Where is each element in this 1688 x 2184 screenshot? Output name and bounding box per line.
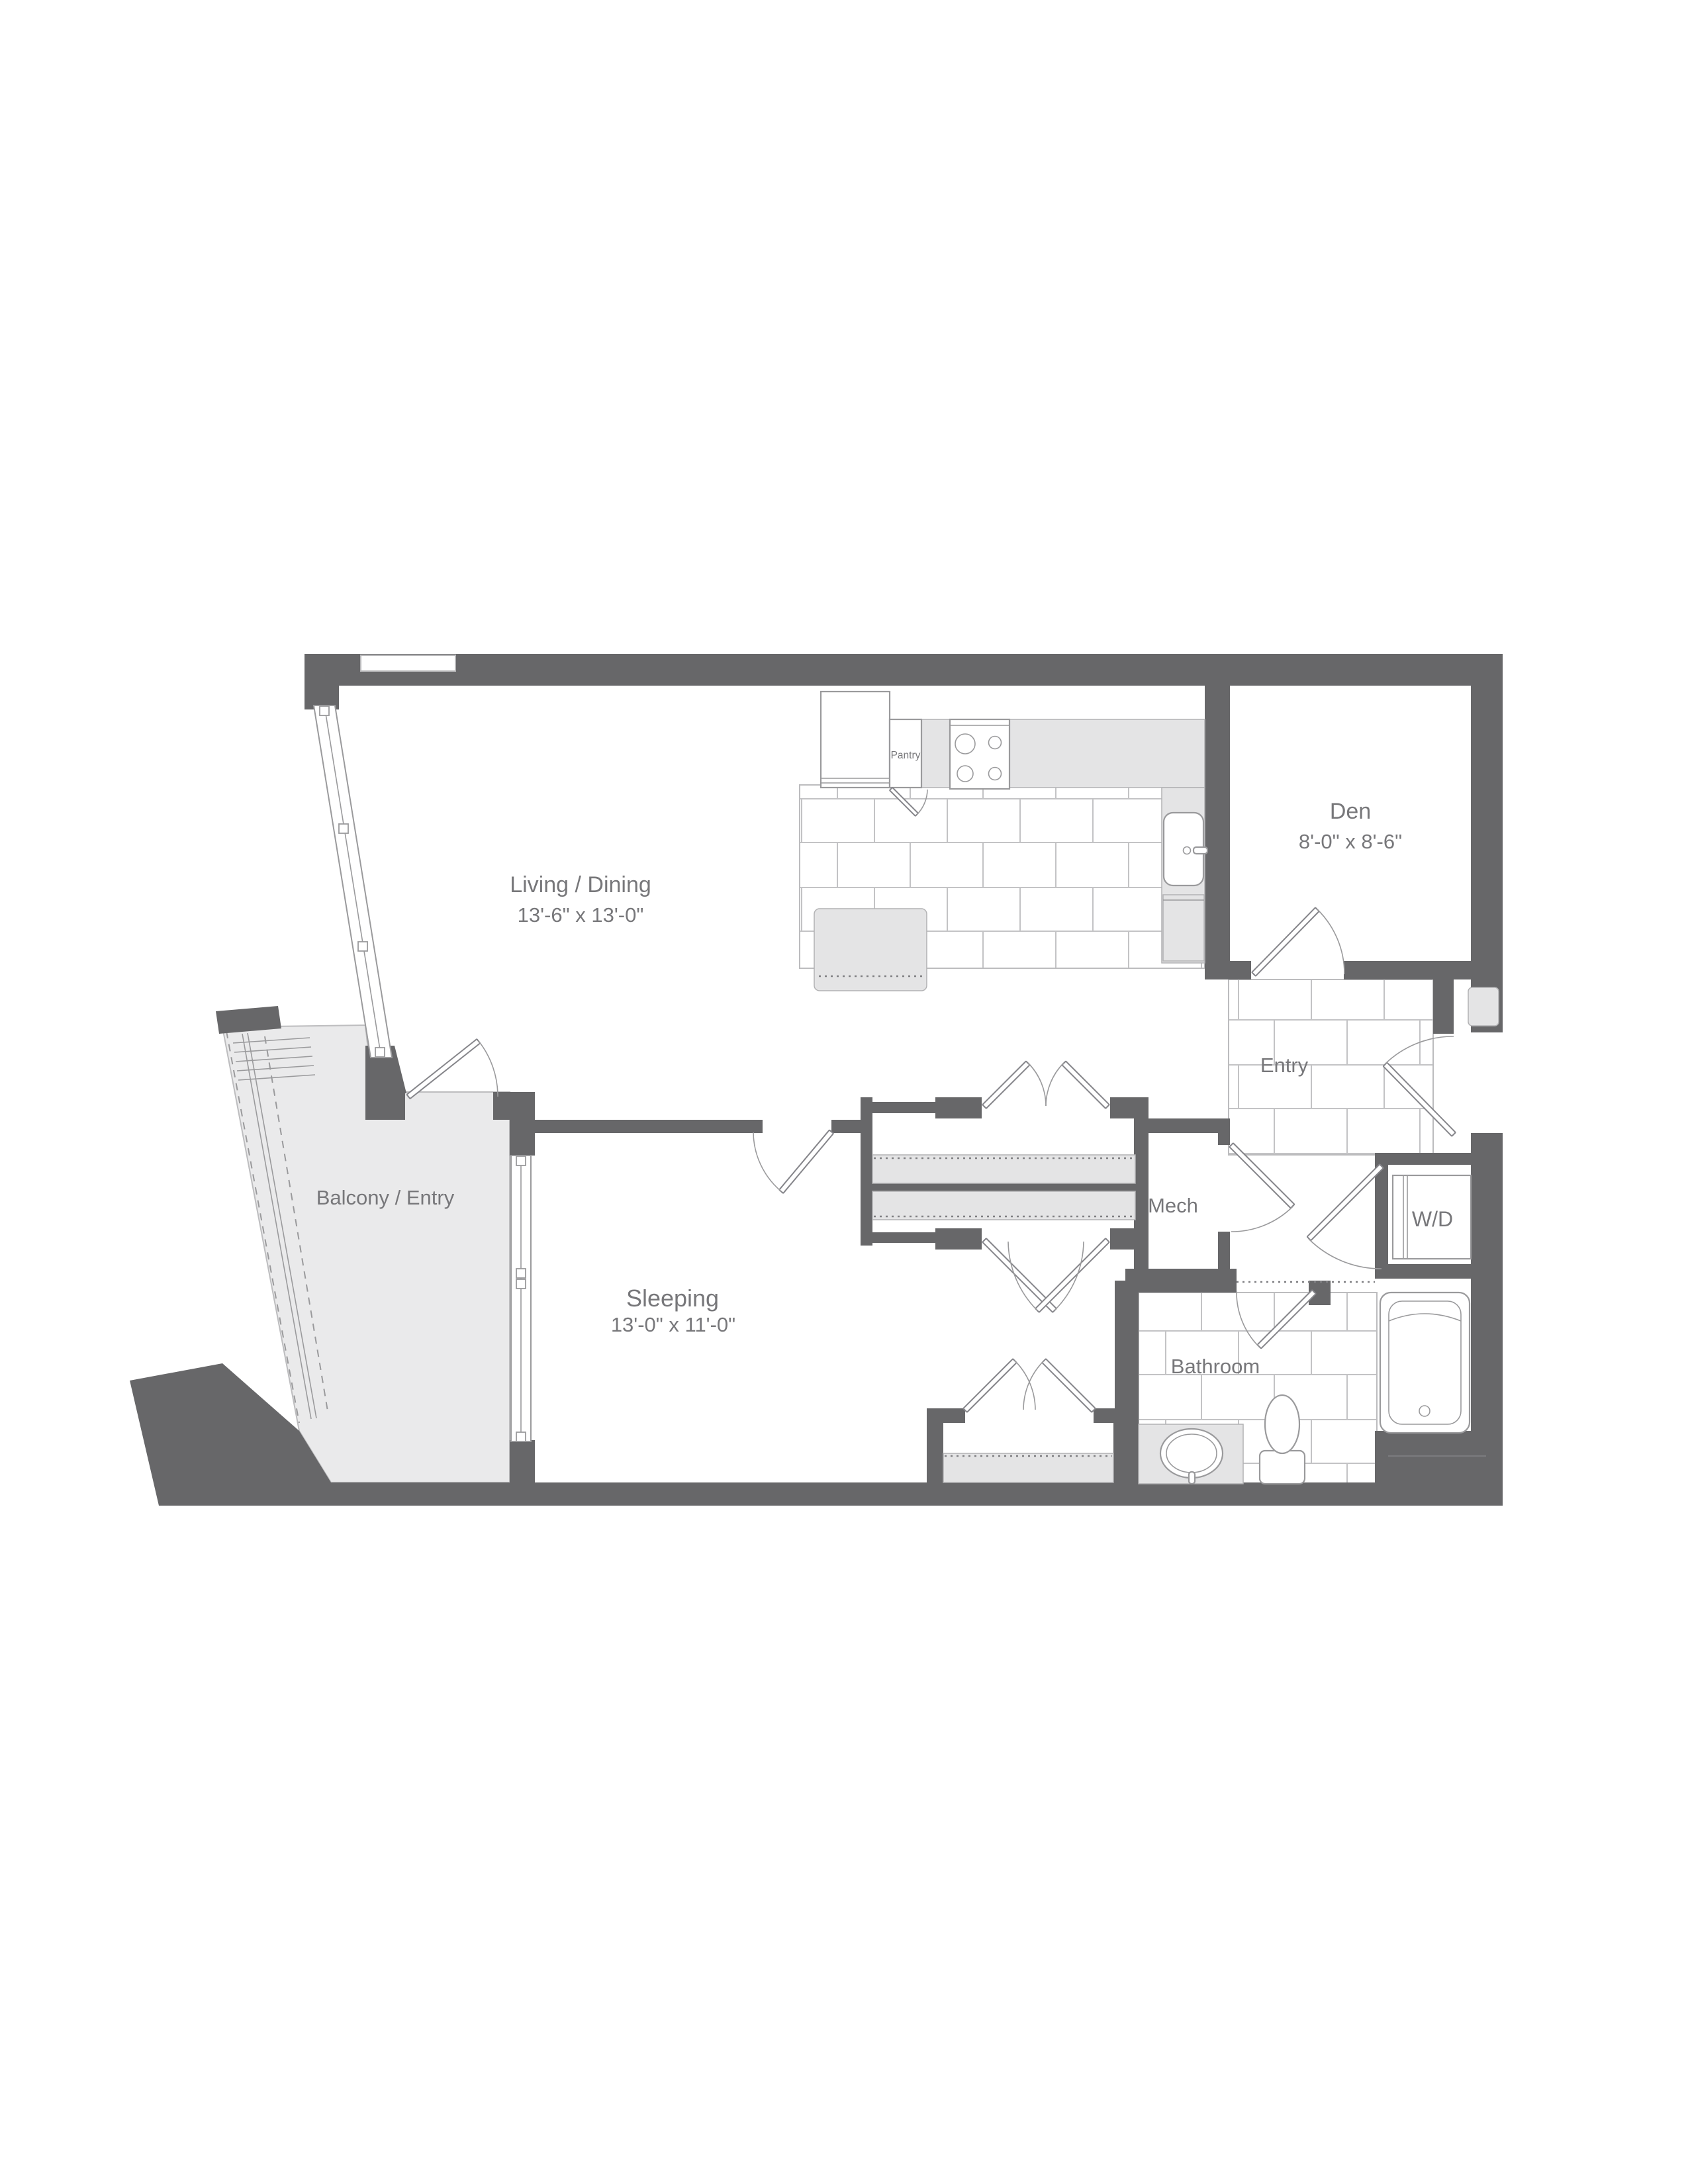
entry-label: Entry bbox=[1260, 1054, 1309, 1077]
den-label: Den bbox=[1330, 799, 1371, 824]
balcony-label: Balcony / Entry bbox=[316, 1186, 455, 1209]
entry-exterior-box bbox=[1468, 987, 1499, 1026]
sleeping-label: Sleeping bbox=[626, 1285, 719, 1312]
entry-tile-floor bbox=[1229, 979, 1433, 1155]
pantry-label: Pantry bbox=[891, 750, 921, 761]
floorplan-page: Living / Dining 13'-6" x 13'-0" Den 8'-0… bbox=[0, 0, 1688, 2184]
living-room-label: Living / Dining bbox=[510, 872, 651, 897]
dishwasher bbox=[1163, 895, 1204, 961]
bathtub-icon bbox=[1380, 1293, 1470, 1433]
wd-label: W/D bbox=[1412, 1207, 1453, 1231]
bathroom-label: Bathroom bbox=[1171, 1355, 1260, 1378]
mech-label: Mech bbox=[1148, 1194, 1198, 1217]
kitchen-sink bbox=[1164, 813, 1207, 886]
sleeping-window bbox=[511, 1156, 531, 1441]
counter bbox=[921, 719, 950, 788]
closet-shelves bbox=[872, 1155, 1135, 1482]
sleeping-dims: 13'-0" x 11'-0" bbox=[611, 1313, 735, 1336]
living-room-dims: 13'-6" x 13'-0" bbox=[518, 903, 644, 927]
counter bbox=[1009, 719, 1205, 788]
living-window bbox=[314, 705, 392, 1058]
kitchen-island bbox=[814, 909, 927, 991]
den-dims: 8'-0" x 8'-6" bbox=[1299, 830, 1402, 853]
floorplan-drawing: Living / Dining 13'-6" x 13'-0" Den 8'-0… bbox=[0, 0, 1688, 2184]
stove-icon bbox=[950, 719, 1009, 789]
refrigerator bbox=[821, 692, 890, 788]
top-wall-notch bbox=[361, 655, 455, 671]
vanity-sink bbox=[1139, 1424, 1243, 1484]
